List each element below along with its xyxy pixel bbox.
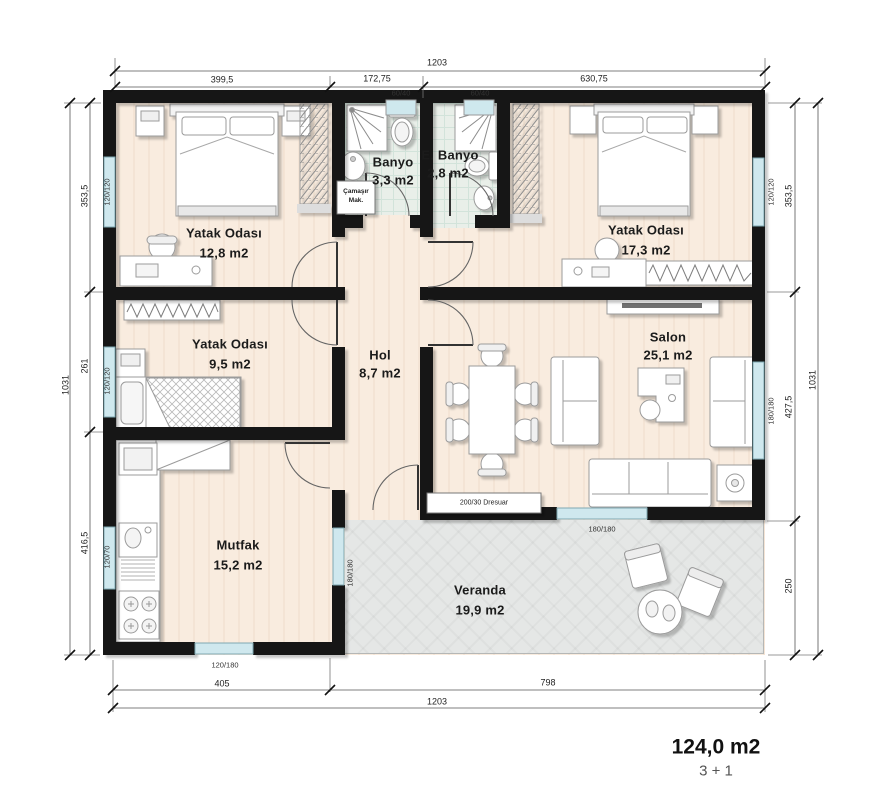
shower-1 bbox=[347, 105, 387, 151]
corner-desk bbox=[638, 368, 684, 422]
dim-left-seg1: 353,5 bbox=[81, 185, 90, 208]
room-yatak1-name: Yatak Odası bbox=[186, 227, 262, 240]
room-veranda-name: Veranda bbox=[454, 584, 506, 597]
radiator-2 bbox=[646, 261, 754, 285]
room-salon-area: 25,1 m2 bbox=[643, 349, 692, 362]
win-left-3: 120/70 bbox=[103, 546, 111, 569]
dim-left-seg3: 416,5 bbox=[81, 532, 90, 555]
dim-left-seg2: 261 bbox=[81, 358, 90, 373]
door-mutfak bbox=[285, 443, 330, 488]
dining-set bbox=[446, 344, 538, 476]
room-yatak3-area: 9,5 m2 bbox=[209, 358, 251, 371]
dim-top-seg2: 172,75 bbox=[363, 75, 391, 84]
door-entrance bbox=[373, 465, 418, 510]
door-hall-nook bbox=[428, 242, 473, 287]
win-top-1: 60/40 bbox=[392, 89, 411, 97]
fixture-washer-line2: Mak. bbox=[349, 198, 363, 205]
win-mutfak-bottom: 120/180 bbox=[211, 661, 238, 669]
dim-left-overall: 1031 bbox=[62, 375, 71, 395]
dim-bottom-seg2: 798 bbox=[540, 679, 555, 688]
win-right-1: 120/120 bbox=[767, 178, 775, 205]
labeled-boxes bbox=[337, 181, 541, 513]
window-banyo bbox=[386, 100, 416, 115]
veranda-chair-2 bbox=[676, 567, 724, 618]
room-hol-area: 8,7 m2 bbox=[359, 367, 401, 380]
sofa-right bbox=[710, 357, 758, 447]
win-mutfak-veranda: 180/180 bbox=[346, 559, 354, 586]
window-right-2 bbox=[753, 362, 764, 459]
dim-right-overall: 1031 bbox=[809, 370, 818, 390]
stove bbox=[119, 591, 159, 639]
total-area: 124,0 m2 bbox=[672, 737, 761, 758]
doors-layer bbox=[285, 173, 493, 510]
floor-plan: Yatak Odası12,8 m2Banyo3,3 m2E. Banyo2,8… bbox=[0, 0, 878, 800]
room-mutfak-name: Mutfak bbox=[216, 539, 259, 552]
dim-right-seg3: 250 bbox=[785, 578, 794, 593]
room-yatak2-name: Yatak Odası bbox=[608, 224, 684, 237]
room-veranda-area: 19,9 m2 bbox=[455, 604, 504, 617]
room-hol-name: Hol bbox=[369, 349, 391, 362]
fixture-dresuar-label: 200/30 Dresuar bbox=[460, 500, 508, 507]
dim-top-overall: 1203 bbox=[427, 59, 447, 68]
room-yatak2-area: 17,3 m2 bbox=[621, 244, 670, 257]
room-yatak1-area: 12,8 m2 bbox=[199, 247, 248, 260]
radiator-1 bbox=[124, 300, 220, 320]
sofa-bottom bbox=[589, 459, 711, 507]
window-ebanyo bbox=[464, 100, 494, 115]
win-top-2: 60/40 bbox=[471, 89, 490, 97]
wardrobe-2 bbox=[510, 104, 542, 223]
window-right-1 bbox=[753, 158, 764, 226]
win-left-1: 120/120 bbox=[103, 178, 111, 205]
single-bed bbox=[116, 377, 241, 429]
double-bed-2 bbox=[570, 104, 718, 216]
furniture-layer bbox=[116, 104, 758, 642]
dim-bottom-overall: 1203 bbox=[427, 698, 447, 707]
dim-top-seg1: 399,5 bbox=[211, 76, 234, 85]
dim-top-seg3: 630,75 bbox=[580, 75, 608, 84]
door-salon bbox=[428, 300, 473, 345]
room-yatak3-name: Yatak Odası bbox=[192, 338, 268, 351]
win-right-2: 180/180 bbox=[767, 397, 775, 424]
room-banyo-area: 3,3 m2 bbox=[372, 174, 414, 187]
window-salon-bottom bbox=[557, 508, 647, 519]
layout-type: 3 + 1 bbox=[699, 764, 733, 779]
door-bedroom-1 bbox=[292, 242, 337, 287]
room-ebanyo-name: E. Banyo bbox=[421, 149, 478, 162]
room-ebanyo-area: 2,8 m2 bbox=[427, 167, 469, 180]
side-table bbox=[717, 465, 753, 501]
wardrobe-1 bbox=[297, 104, 331, 213]
loveseat bbox=[551, 357, 599, 445]
room-banyo-name: Banyo bbox=[373, 156, 414, 169]
plan-drawing bbox=[0, 0, 878, 800]
veranda-chair-1 bbox=[624, 543, 668, 589]
tv-console bbox=[607, 298, 719, 314]
window-mutfak-veranda bbox=[333, 528, 344, 585]
dim-bottom-seg1: 405 bbox=[214, 680, 229, 689]
room-mutfak-area: 15,2 m2 bbox=[213, 559, 262, 572]
dim-right-seg1: 353,5 bbox=[785, 185, 794, 208]
double-bed-1 bbox=[136, 104, 310, 216]
desk-1 bbox=[120, 234, 212, 286]
nightstand-3 bbox=[116, 349, 145, 377]
win-left-2: 120/120 bbox=[103, 367, 111, 394]
win-salon-bottom: 180/180 bbox=[588, 525, 615, 533]
window-mutfak-bottom bbox=[195, 643, 253, 654]
door-bedroom-3 bbox=[292, 300, 337, 345]
fixture-washer-line1: Çamaşır bbox=[343, 189, 369, 196]
veranda-table bbox=[638, 590, 682, 634]
room-salon-name: Salon bbox=[650, 331, 686, 344]
dim-right-seg2: 427,5 bbox=[785, 396, 794, 419]
